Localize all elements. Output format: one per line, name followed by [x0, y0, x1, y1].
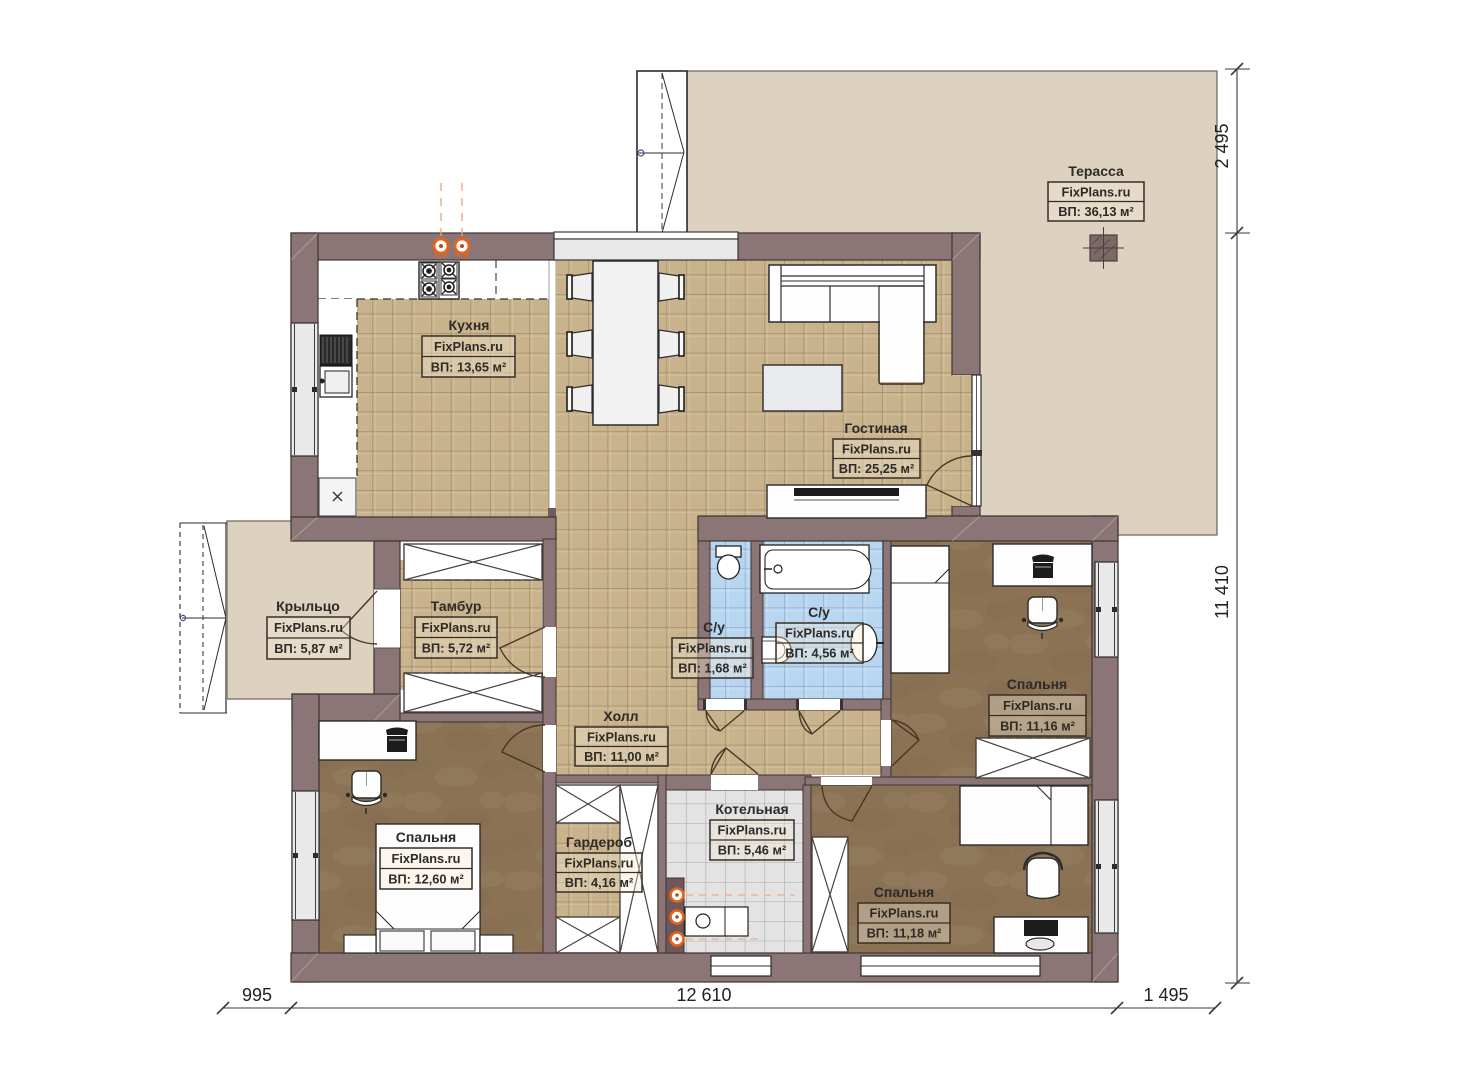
- svg-text:2 495: 2 495: [1212, 123, 1232, 168]
- svg-text:FixPlans.ru: FixPlans.ru: [565, 855, 634, 870]
- svg-text:FixPlans.ru: FixPlans.ru: [678, 641, 747, 656]
- svg-text:ВП: 36,13 м²: ВП: 36,13 м²: [1058, 204, 1134, 219]
- svg-text:ВП: 11,00 м²: ВП: 11,00 м²: [584, 749, 659, 764]
- svg-text:С/у: С/у: [703, 619, 725, 635]
- svg-text:995: 995: [242, 985, 272, 1005]
- svg-text:FixPlans.ru: FixPlans.ru: [842, 441, 911, 456]
- svg-text:ВП: 11,18 м²: ВП: 11,18 м²: [867, 926, 942, 941]
- svg-text:FixPlans.ru: FixPlans.ru: [392, 851, 461, 866]
- svg-text:ВП: 5,87 м²: ВП: 5,87 м²: [274, 641, 342, 656]
- svg-text:FixPlans.ru: FixPlans.ru: [1062, 184, 1131, 199]
- svg-text:FixPlans.ru: FixPlans.ru: [1003, 698, 1072, 713]
- svg-text:11 410: 11 410: [1212, 565, 1232, 619]
- svg-text:ВП: 4,56 м²: ВП: 4,56 м²: [785, 646, 853, 661]
- svg-text:Холл: Холл: [603, 708, 638, 724]
- svg-text:ВП: 5,72 м²: ВП: 5,72 м²: [422, 640, 490, 655]
- svg-text:FixPlans.ru: FixPlans.ru: [274, 620, 343, 635]
- svg-text:С/у: С/у: [808, 604, 830, 620]
- svg-text:FixPlans.ru: FixPlans.ru: [422, 620, 491, 635]
- svg-text:Спальня: Спальня: [874, 884, 934, 900]
- svg-text:1 495: 1 495: [1143, 985, 1188, 1005]
- svg-text:12 610: 12 610: [676, 985, 731, 1005]
- svg-text:ВП: 12,60 м²: ВП: 12,60 м²: [388, 871, 464, 886]
- svg-text:FixPlans.ru: FixPlans.ru: [785, 626, 854, 641]
- svg-text:FixPlans.ru: FixPlans.ru: [718, 823, 787, 838]
- svg-text:Терасса: Терасса: [1068, 163, 1124, 179]
- svg-text:ВП: 4,16 м²: ВП: 4,16 м²: [565, 875, 633, 890]
- svg-text:ВП: 5,46 м²: ВП: 5,46 м²: [718, 843, 786, 858]
- svg-text:Котельная: Котельная: [715, 801, 788, 817]
- svg-text:FixPlans.ru: FixPlans.ru: [587, 729, 656, 744]
- svg-text:FixPlans.ru: FixPlans.ru: [434, 339, 503, 354]
- svg-text:ВП: 11,16 м²: ВП: 11,16 м²: [1000, 718, 1075, 733]
- svg-text:Спальня: Спальня: [1007, 676, 1067, 692]
- svg-text:Крыльцо: Крыльцо: [276, 598, 340, 614]
- svg-text:ВП: 1,68 м²: ВП: 1,68 м²: [678, 661, 746, 676]
- svg-text:Спальня: Спальня: [396, 829, 456, 845]
- svg-text:Гостиная: Гостиная: [844, 420, 907, 436]
- svg-text:Гардероб: Гардероб: [566, 834, 633, 850]
- svg-text:FixPlans.ru: FixPlans.ru: [870, 906, 939, 921]
- svg-text:ВП: 13,65 м²: ВП: 13,65 м²: [431, 359, 507, 374]
- svg-text:Кухня: Кухня: [449, 317, 490, 333]
- svg-text:ВП: 25,25 м²: ВП: 25,25 м²: [839, 461, 915, 476]
- svg-text:Тамбур: Тамбур: [431, 598, 482, 614]
